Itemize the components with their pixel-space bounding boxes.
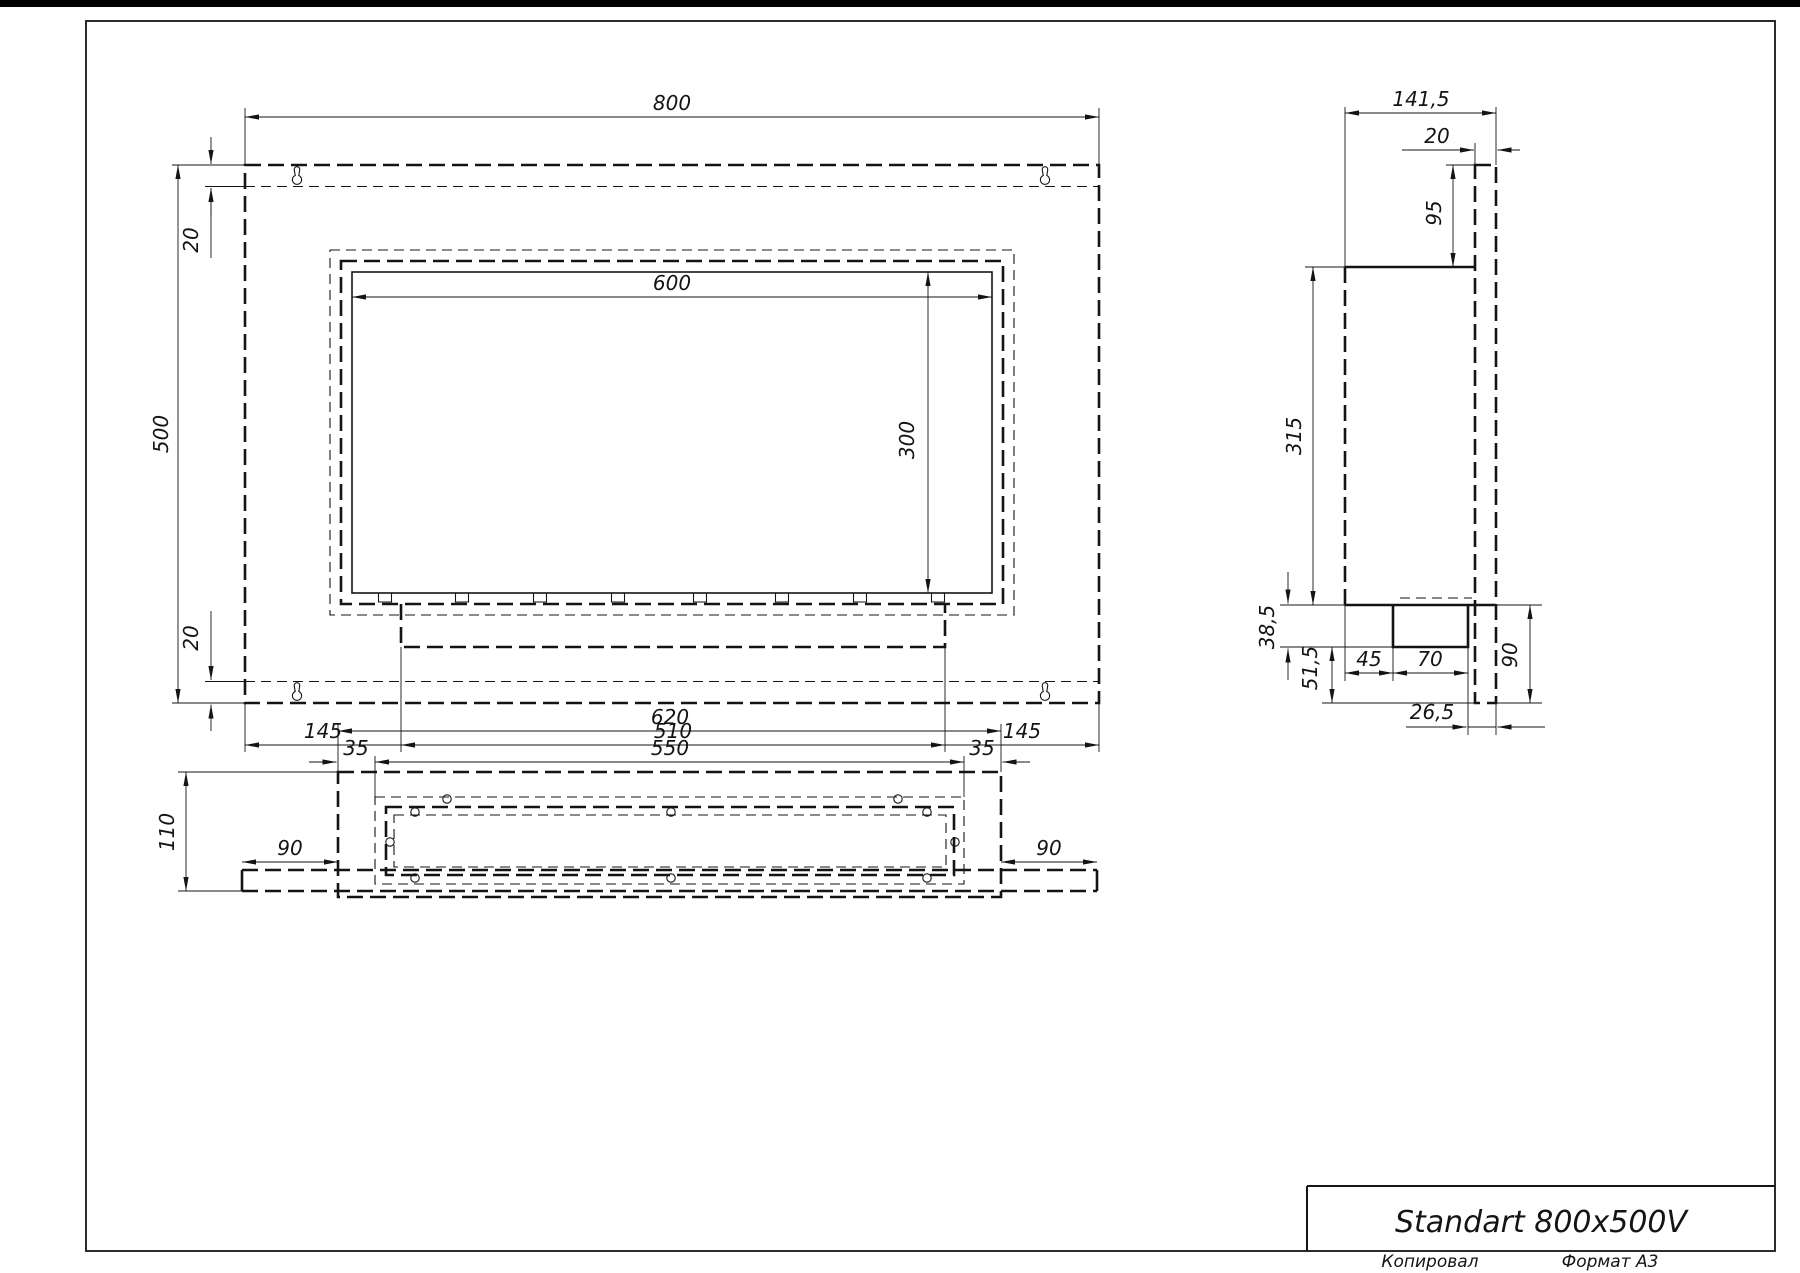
bottom-view: 620 550 35 35 110 90 90 (155, 705, 1097, 897)
side-view: 141,5 20 95 315 38,5 51,5 45 70 26,5 90 (1255, 87, 1545, 735)
dim-depth-total: 141,5 (1392, 87, 1449, 111)
drawing-sheet: 800 500 20 20 600 300 145 510 14 (0, 0, 1800, 1273)
dim-wing-left: 90 (277, 836, 302, 860)
dim-front-height: 500 (149, 415, 173, 453)
keyhole-slot-icon (292, 167, 301, 185)
dim-side-offset-right: 35 (969, 736, 994, 760)
dim-margin-left: 145 (304, 719, 342, 743)
dim-bottom-offset: 51,5 (1298, 646, 1322, 691)
dim-front-offset-bottom: 20 (179, 625, 203, 650)
front-view: 800 500 20 20 600 300 145 510 14 (149, 91, 1099, 752)
dim-box-height: 315 (1282, 417, 1306, 455)
bench-outline (1393, 605, 1468, 647)
screw-hole (923, 874, 931, 882)
technical-drawing: 800 500 20 20 600 300 145 510 14 (0, 0, 1800, 1273)
format-label: Формат А3 (1562, 1252, 1659, 1272)
burner-inner-dashed (394, 815, 946, 867)
dim-back-gap: 26,5 (1410, 700, 1455, 724)
dim-side-offset-left: 35 (343, 736, 368, 760)
sheet-footer: Копировал Формат А3 (1381, 1252, 1658, 1272)
burner-tabs (379, 593, 945, 602)
scan-top-bar (0, 0, 1800, 7)
dim-panel-below-box: 90 (1498, 642, 1522, 667)
dim-opening-height: 300 (895, 421, 919, 459)
wall-panel-outline (1475, 165, 1496, 703)
dim-front-offset-top: 20 (179, 227, 203, 252)
front-frame-outline (245, 165, 1099, 703)
bench-hidden-outline (401, 604, 945, 647)
screw-hole (894, 795, 902, 803)
dim-box-width: 620 (651, 705, 689, 729)
keyhole-slot-icon (292, 683, 301, 701)
keyhole-slot-icon (1040, 167, 1049, 185)
copied-label: Копировал (1381, 1252, 1478, 1272)
drawing-title: Standart 800x500V (1395, 1205, 1690, 1240)
dim-margin-right: 145 (1003, 719, 1041, 743)
screw-hole (443, 795, 451, 803)
dim-wing-right: 90 (1036, 836, 1061, 860)
dim-front-width: 800 (653, 91, 691, 115)
keyhole-slot-icon (1040, 683, 1049, 701)
title-block: Standart 800x500V (1307, 1186, 1775, 1251)
dim-plan-depth: 110 (155, 813, 179, 851)
burner-hidden-dashed (386, 807, 954, 875)
dim-opening-width: 600 (653, 271, 691, 295)
dim-bench-depth: 70 (1417, 647, 1442, 671)
box-plan-outline (338, 772, 1001, 897)
screw-hole (386, 838, 394, 846)
screw-hole (667, 874, 675, 882)
dim-inner-width: 550 (651, 736, 689, 760)
dim-top-offset: 95 (1422, 200, 1446, 225)
dim-bench-setback: 45 (1356, 647, 1381, 671)
dim-panel-thickness: 20 (1424, 124, 1449, 148)
sheet-border (86, 21, 1775, 1251)
dim-bench-height: 38,5 (1255, 605, 1279, 650)
